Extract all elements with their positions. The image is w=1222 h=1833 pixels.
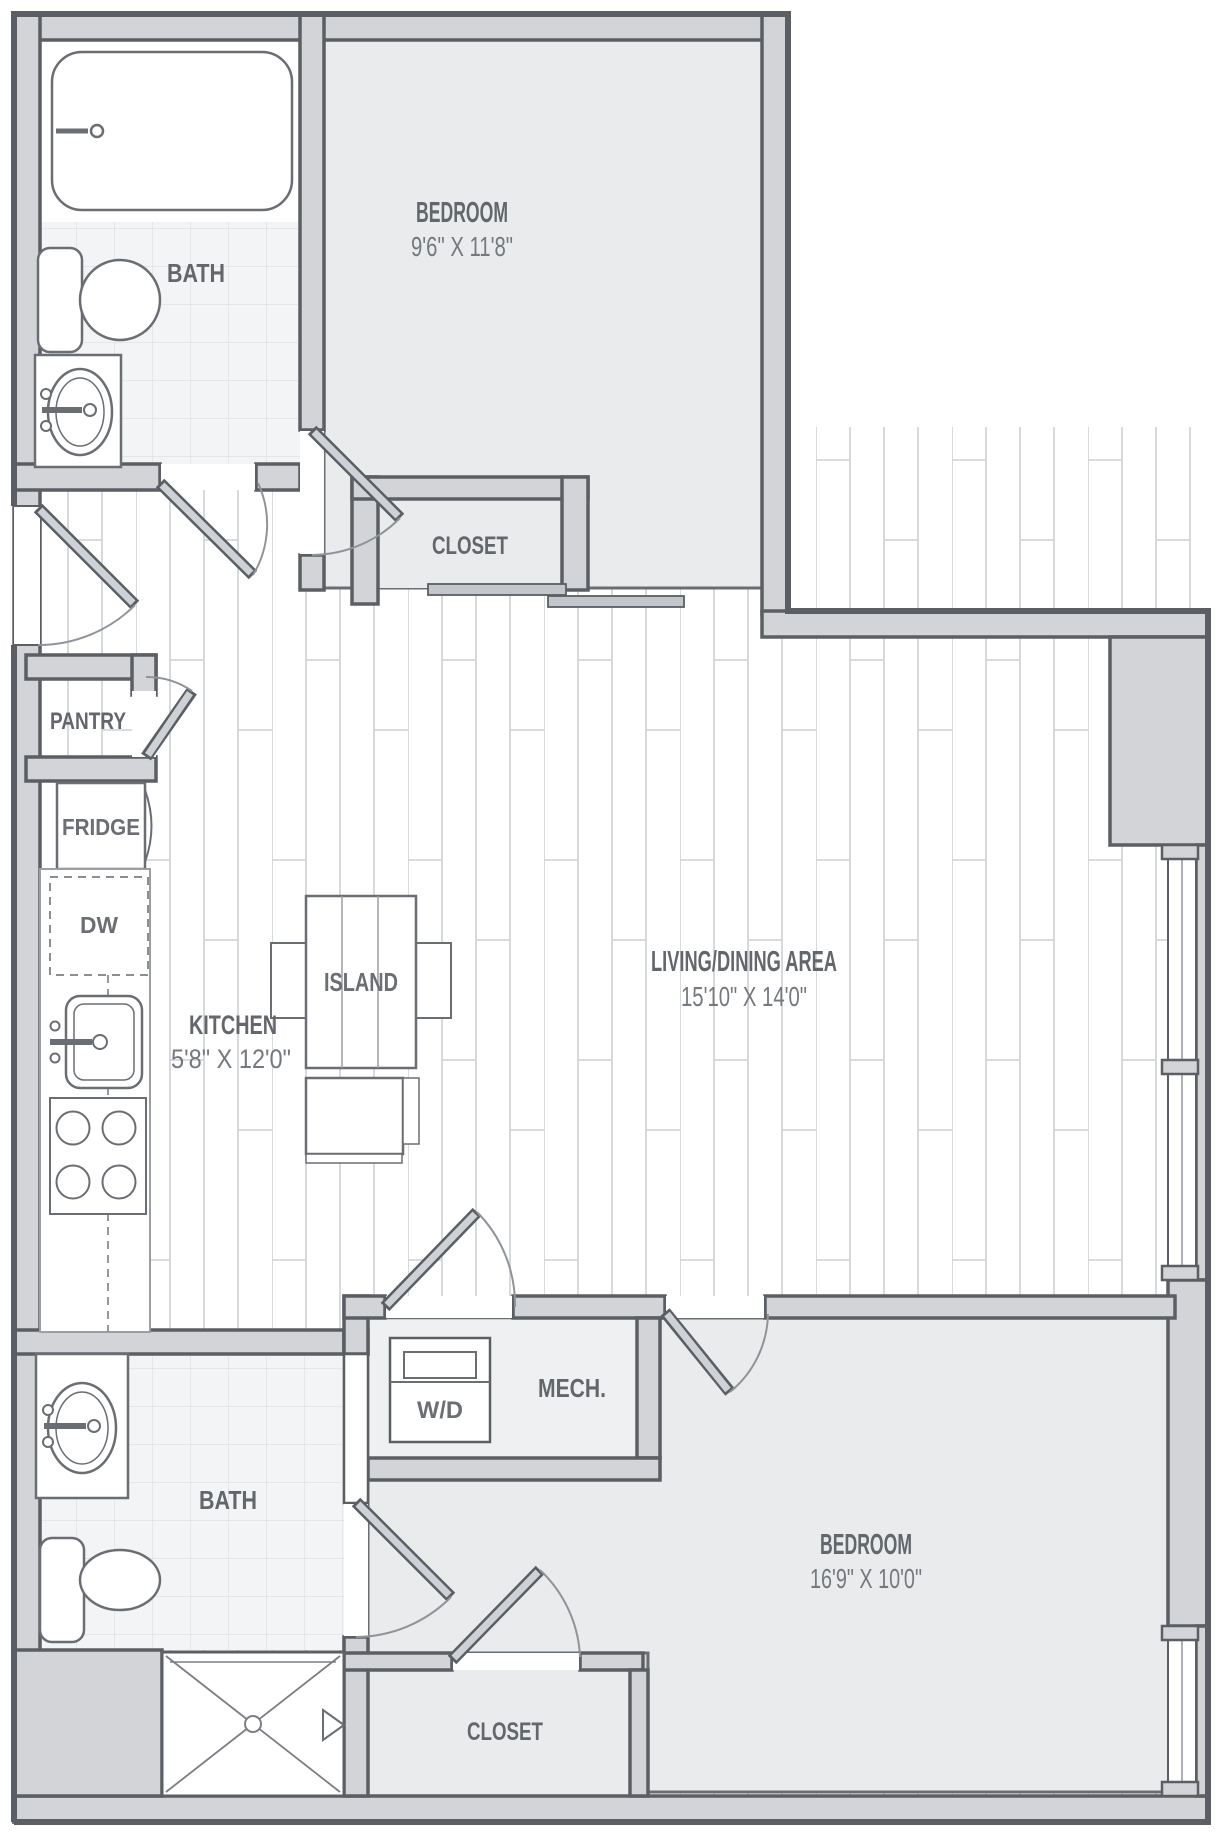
bath-top-opening — [160, 464, 256, 490]
wall-top — [14, 14, 788, 40]
wall-closet-top-top — [352, 477, 588, 499]
room-label-mech: MECH. — [538, 1373, 606, 1403]
floors — [40, 40, 1204, 1796]
washer-dryer-label: W/D — [417, 1397, 463, 1424]
room-label-bath-top: BATH — [167, 258, 225, 288]
room-dim-bedroom-top: 9'6" X 11'8" — [411, 231, 513, 262]
room-label-closet-top: CLOSET — [432, 532, 508, 560]
island-label: ISLAND — [324, 967, 398, 997]
wall-bath-bottom-top — [14, 1330, 344, 1354]
room-label-bath-bottom: BATH — [199, 1485, 257, 1515]
room-label-kitchen: KITCHEN — [189, 1010, 277, 1040]
wall-bedroom-bottom-right — [1168, 1280, 1208, 1626]
wall-living-bottom-b — [513, 1296, 665, 1318]
wall-living-bottom-c — [765, 1296, 1175, 1318]
window-mullion — [1162, 845, 1198, 859]
shower-icon — [162, 1652, 344, 1796]
window-mullion — [1162, 1626, 1198, 1640]
room-dim-bedroom-bottom: 16'9" X 10'0" — [810, 1563, 922, 1594]
fridge-icon: FRIDGE — [57, 783, 152, 869]
wall-living-bottom-a — [344, 1296, 385, 1318]
room-label-bedroom-bottom: BEDROOM — [820, 1529, 912, 1561]
sink-icon — [35, 355, 121, 467]
wall-bottom-left-block — [14, 1650, 162, 1796]
room-dim-kitchen: 5'8" X 12'0" — [171, 1044, 291, 1074]
wall-mech-bottom — [368, 1458, 660, 1480]
mech-opening — [385, 1296, 513, 1318]
fridge-label: FRIDGE — [62, 814, 140, 840]
room-dim-living-dining: 15'10" X 14'0" — [681, 981, 807, 1012]
wall-closet-bottom-top-left — [344, 1653, 452, 1670]
window-mullion — [1162, 1060, 1198, 1074]
entry-opening — [14, 506, 40, 645]
wall-right-column — [1110, 637, 1208, 845]
room-label-closet-bottom: CLOSET — [467, 1718, 543, 1746]
room-label-pantry: PANTRY — [50, 708, 126, 735]
window-mullion — [1162, 1782, 1198, 1796]
wall-left — [14, 14, 40, 1822]
bedroom-top-opening — [300, 430, 324, 555]
wall-exterior-step — [762, 611, 1208, 637]
bedroom-bottom-opening — [665, 1296, 765, 1318]
window-mullion — [1162, 1266, 1198, 1280]
bathtub-icon — [52, 52, 292, 210]
wall-closet-top-right — [562, 477, 588, 590]
washer-dryer-icon: W/D — [390, 1338, 490, 1442]
sink-icon — [36, 1354, 128, 1498]
wall-bedroom-top-right — [762, 14, 788, 615]
wall-bottom — [14, 1796, 1208, 1822]
floor-plan: FRIDGE DW ISLAND — [0, 0, 1222, 1833]
wall-bath-bedroom-thin — [344, 1354, 368, 1503]
wall-pantry-jamb — [132, 655, 156, 695]
wall-bath-top-bottom-right — [256, 464, 300, 490]
wall-mech-right — [637, 1318, 660, 1458]
floor-plan-page: FRIDGE DW ISLAND — [0, 0, 1222, 1833]
room-label-living-dining: LIVING/DINING AREA — [651, 946, 837, 978]
wall-closet-bottom-top-right — [580, 1653, 643, 1670]
wall-pantry-bottom — [26, 757, 156, 781]
room-label-bedroom-top: BEDROOM — [416, 197, 508, 229]
bath-bottom-opening — [344, 1503, 368, 1637]
wall-bath-bedroom-divider-upper — [300, 14, 324, 430]
wall-closet-bottom-right — [630, 1670, 648, 1796]
stove-icon — [50, 1098, 146, 1214]
closet-bottom-opening — [452, 1653, 580, 1670]
dishwasher-label: DW — [80, 912, 118, 938]
wall-bath-bedroom-divider-lower — [300, 555, 324, 590]
